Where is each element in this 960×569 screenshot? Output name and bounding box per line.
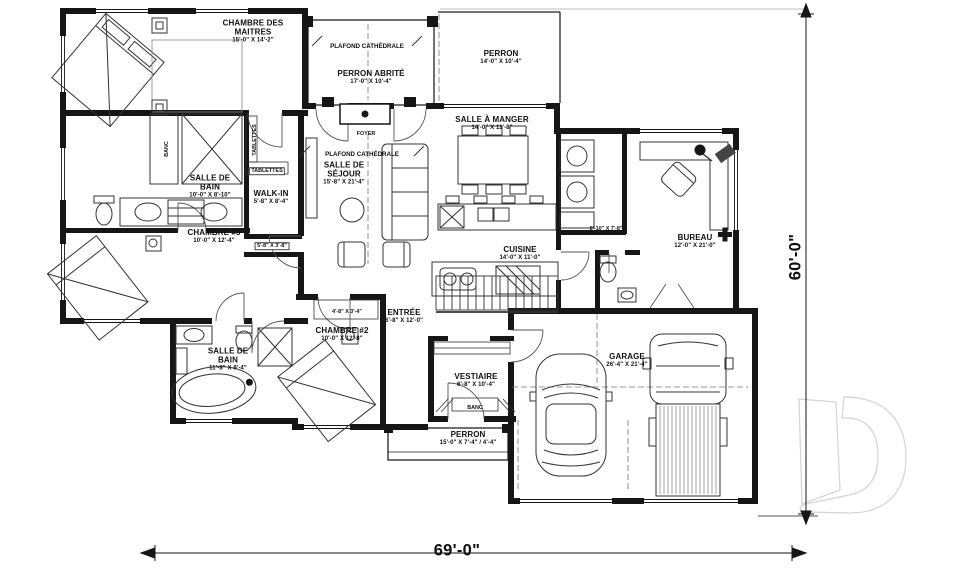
utility-dims-label: 8'-10" X 7'-8"	[590, 217, 623, 235]
room-label-covered-porch: PERRON ABRITÉ 17'-0" X 10'-4"	[337, 70, 404, 86]
room-label-dining: SALLE À MANGER 14'-0" X 11'-8"	[447, 116, 537, 132]
cathedral-ceiling-label: PLAFOND CATHÉDRALE	[330, 35, 404, 53]
tablettes-label: TABLETTES	[243, 124, 261, 155]
room-label-bathroom-2: SALLE DE BAIN 11'-8" X 9'-4"	[205, 347, 251, 372]
room-label-kitchen: CUISINE 14'-0" X 11'-0"	[480, 246, 560, 262]
room-label-porch-bottom: PERRON 15'-0" X 7'-4" / 4'-4"	[423, 431, 513, 447]
floor-plan-canvas: CHAMBRE DES MAITRES 15'-0" X 14'-2" PLAF…	[0, 0, 960, 569]
banc-label: BANC	[155, 141, 173, 157]
room-label-garage: GARAGE 26'-4" X 21'-4"	[582, 353, 672, 369]
closet-dims-label: 4'-8" X 3'-4"	[332, 300, 362, 318]
overall-width-dimension: 69'-0"	[434, 542, 481, 561]
tablettes-label: TABLETTES	[249, 159, 285, 177]
closet-dims-label: 5'-8" X 3'-8"	[255, 234, 290, 252]
room-label-bathroom-1: SALLE DE BAIN 10'-0" X 8'-10"	[187, 174, 233, 199]
room-label-living-room: SALLE DE SÉJOUR 15'-8" X 21'-4"	[320, 161, 368, 186]
cathedral-ceiling-label: PLAFOND CATHÉDRALE	[325, 143, 399, 161]
room-label-bedroom-2: CHAMBRE #2 10'-0" X 12'-8"	[302, 327, 382, 343]
room-label-walk-in: WALK-IN 5'-8" X 8'-4"	[244, 190, 298, 206]
room-label-office: BUREAU 12'-0" X 21'-0"	[655, 234, 735, 250]
room-label-bedroom-3: CHAMBRE #3 10'-0" X 12'-4"	[174, 229, 254, 245]
banc-label: BANC	[467, 396, 483, 414]
overall-height-dimension: 60'-0"	[787, 234, 806, 281]
room-label-porch-top: PERRON 14'-0" X 10'-4"	[480, 50, 521, 66]
labels-layer: CHAMBRE DES MAITRES 15'-0" X 14'-2" PLAF…	[0, 0, 960, 569]
room-label-entry: ENTRÉE 6'-8" X 12'-0"	[374, 309, 434, 325]
room-label-mudroom: VESTIAIRE 6'-8" X 10'-4"	[441, 373, 511, 389]
foyer-label: FOYER	[357, 122, 376, 140]
room-label-master-bedroom: CHAMBRE DES MAITRES 15'-0" X 14'-2"	[218, 19, 288, 44]
